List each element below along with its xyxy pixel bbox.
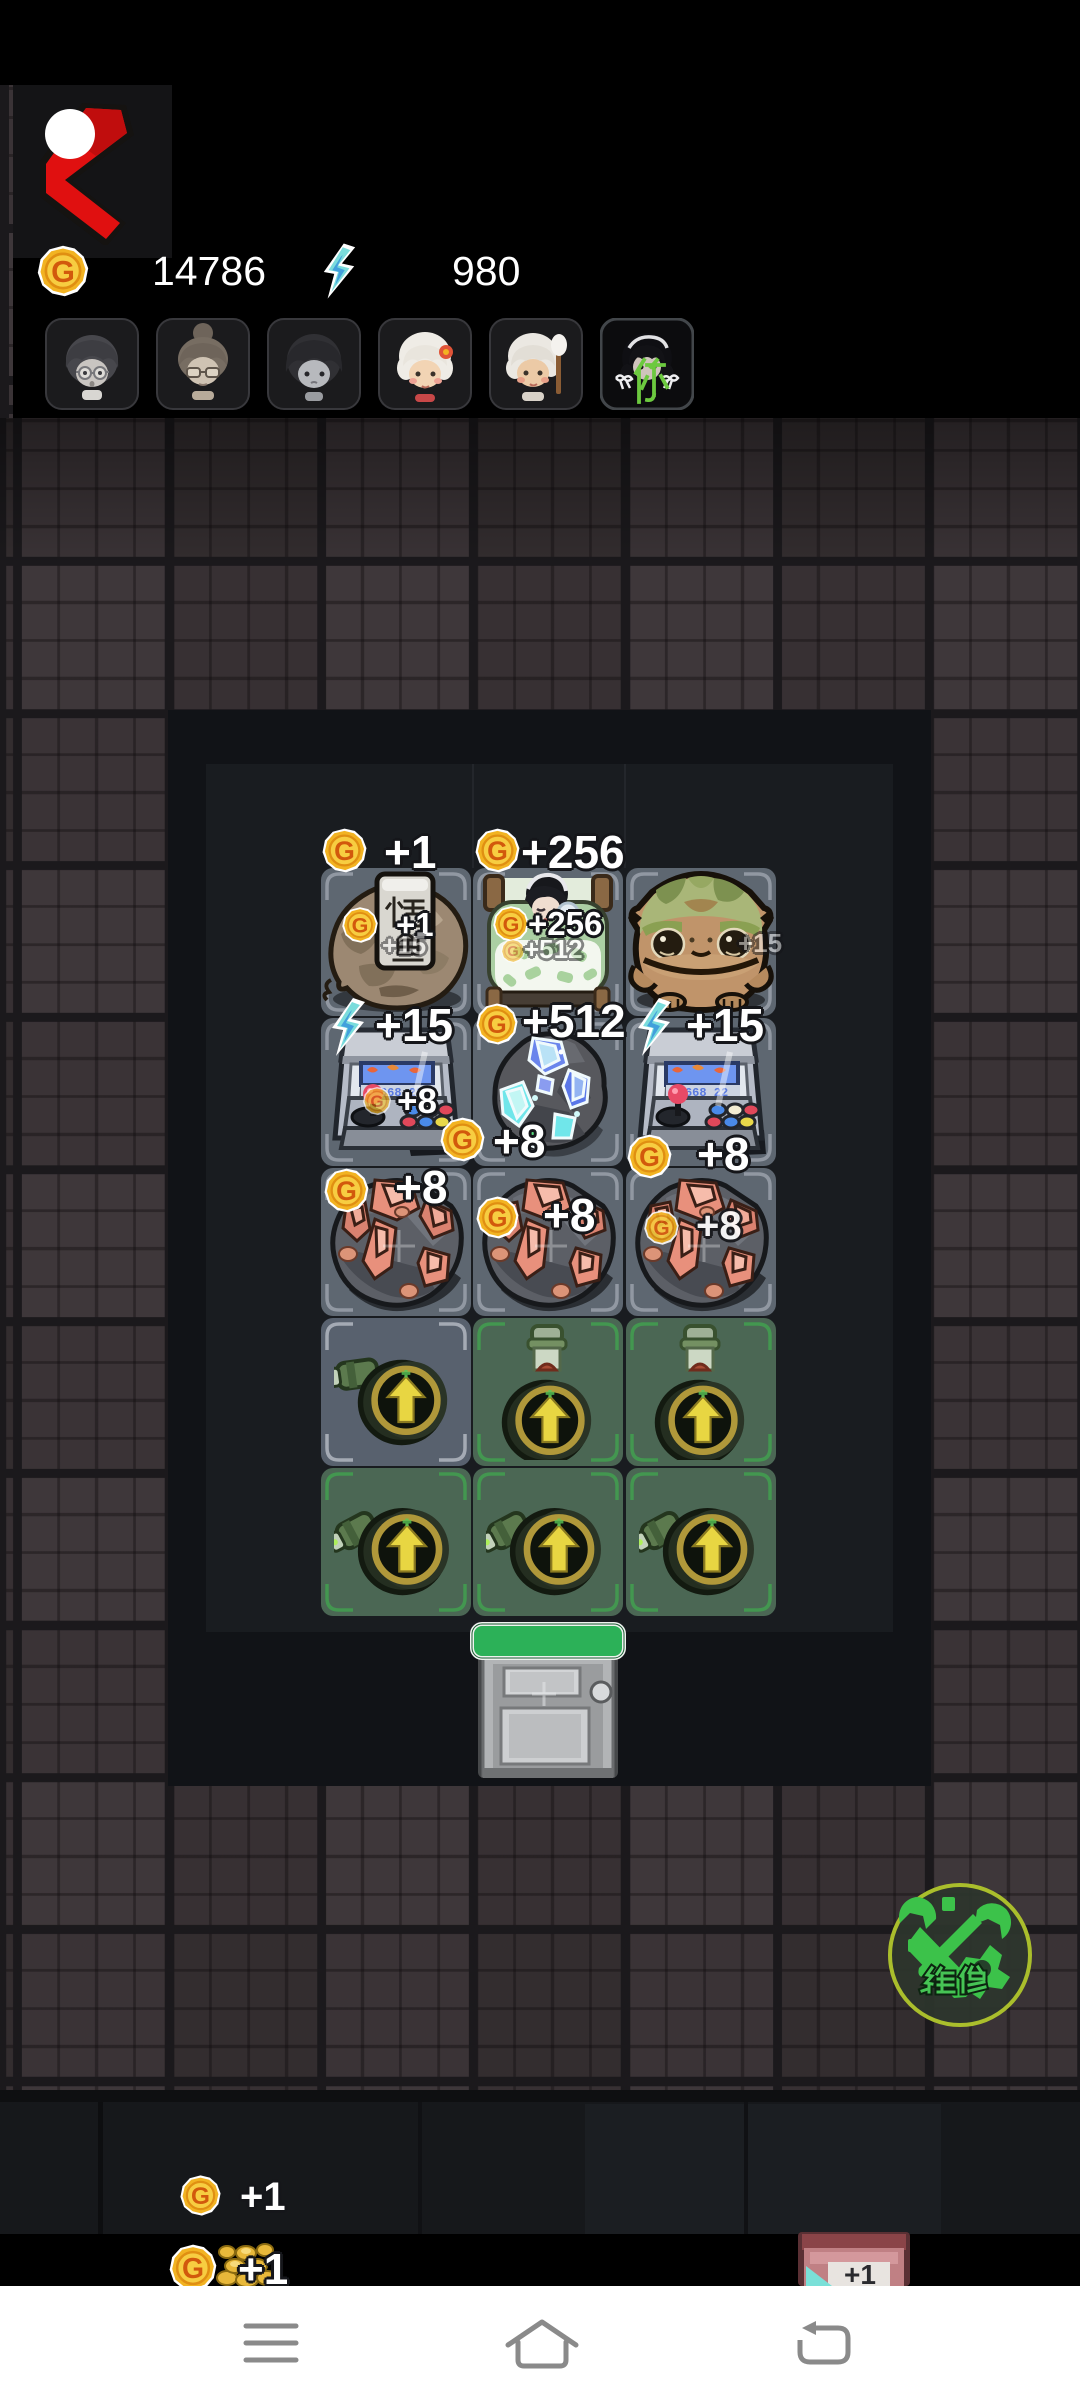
- svg-text:+1: +1: [844, 2259, 876, 2286]
